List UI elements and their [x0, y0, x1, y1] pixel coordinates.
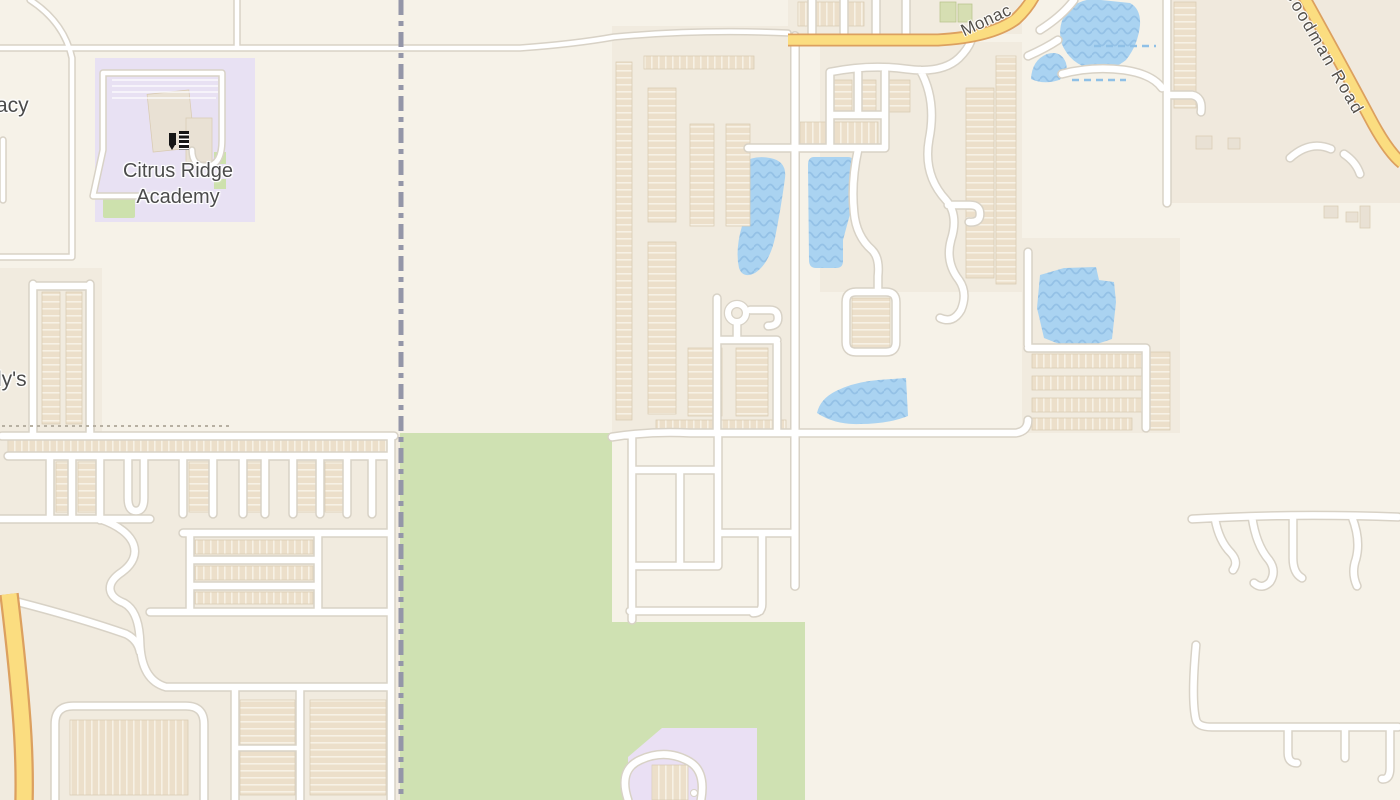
school-icon-left-glyph — [169, 133, 176, 145]
school-name-line1: Citrus Ridge — [123, 160, 233, 182]
school-name-label: Citrus Ridge Academy — [86, 158, 270, 210]
map-tile-art — [0, 0, 1400, 800]
partial-place-label-mid-left: ly's — [0, 368, 27, 392]
pond — [1060, 0, 1140, 70]
map-canvas[interactable]: acy ly's Citrus Ridge Academy Monac Good… — [0, 0, 1400, 800]
school-name-line2: Academy — [136, 186, 219, 208]
pond — [817, 378, 908, 424]
school-icon — [166, 131, 192, 153]
partial-place-label-top-left: acy — [0, 94, 29, 118]
school-icon-right-glyph — [179, 131, 189, 150]
small-road-dot — [691, 790, 698, 797]
